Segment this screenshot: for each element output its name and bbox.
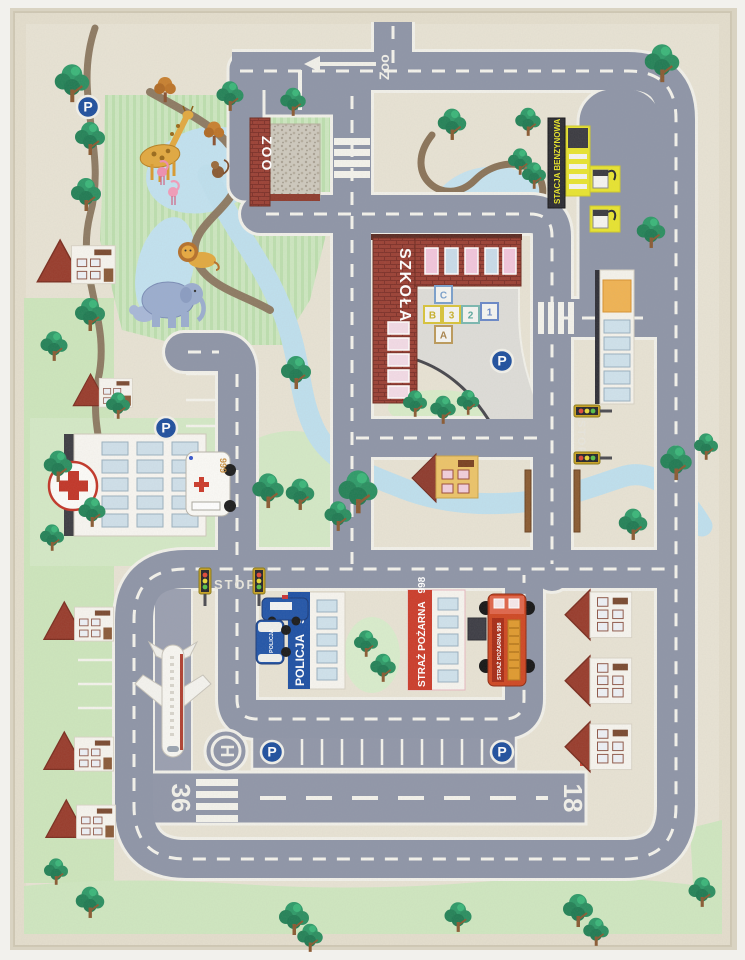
play-mat: P: [0, 0, 745, 960]
play-mat-photo: P: [0, 0, 745, 960]
photo-grain: [14, 12, 731, 946]
